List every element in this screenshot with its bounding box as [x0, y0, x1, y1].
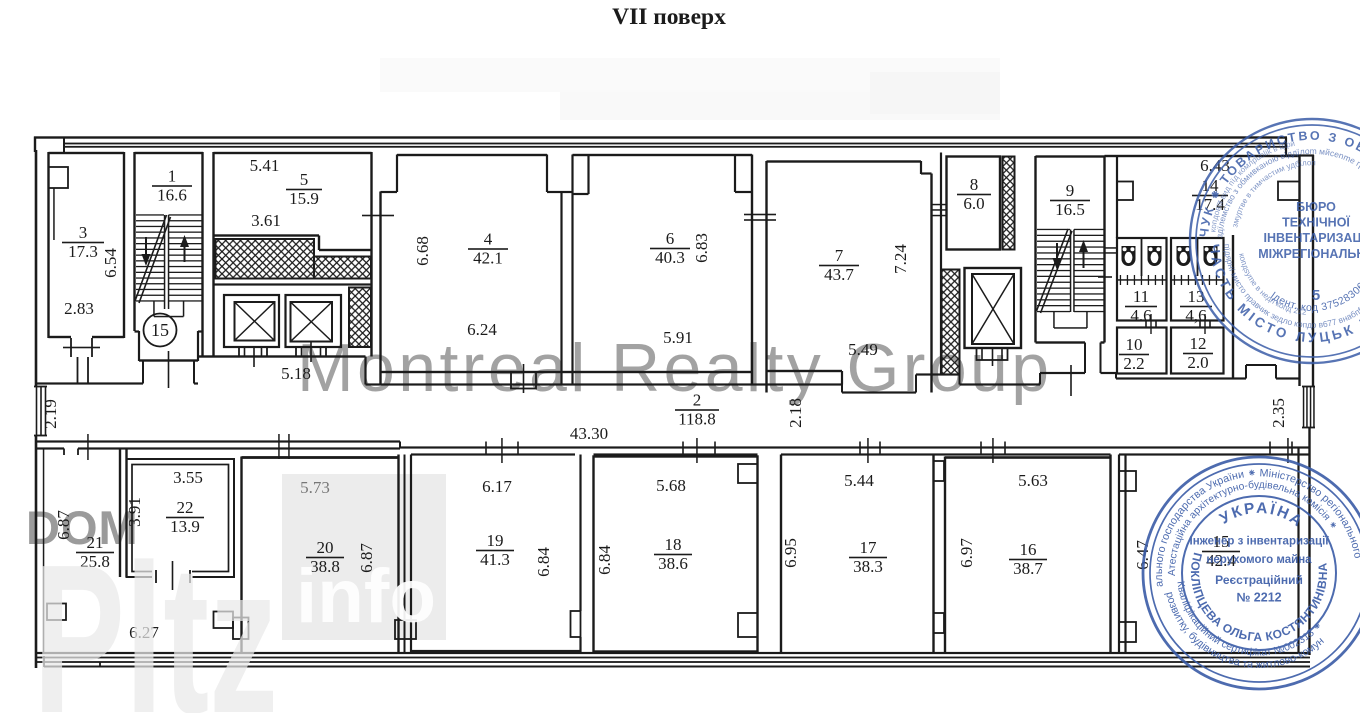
svg-text:4: 4 [484, 230, 493, 249]
svg-text:12: 12 [1190, 334, 1207, 353]
svg-text:№ 2212: № 2212 [1236, 591, 1281, 605]
svg-text:3.61: 3.61 [251, 211, 281, 230]
svg-text:VII поверх: VII поверх [612, 4, 726, 30]
svg-text:2.2: 2.2 [1123, 354, 1144, 373]
svg-text:8: 8 [970, 175, 979, 194]
svg-text:17: 17 [860, 538, 878, 557]
svg-text:5.18: 5.18 [281, 364, 311, 383]
svg-text:3: 3 [79, 223, 88, 242]
svg-text:9: 9 [1066, 181, 1075, 200]
svg-text:38.7: 38.7 [1013, 559, 1043, 578]
svg-text:43.7: 43.7 [824, 265, 854, 284]
svg-text:6.17: 6.17 [482, 477, 512, 496]
svg-text:18: 18 [665, 535, 682, 554]
svg-text:6.84: 6.84 [595, 545, 614, 575]
svg-text:2.0: 2.0 [1187, 353, 1208, 372]
svg-text:7: 7 [835, 246, 844, 265]
svg-text:ІНВЕНТАРИЗАЦІЇ: ІНВЕНТАРИЗАЦІЇ [1264, 230, 1360, 245]
svg-text:Реєстраційний: Реєстраційний [1215, 573, 1303, 587]
svg-text:5: 5 [1312, 287, 1320, 304]
svg-text:Інженер з інвентаризації: Інженер з інвентаризації [1190, 536, 1330, 548]
svg-text:2.19: 2.19 [41, 399, 60, 429]
svg-text:17.3: 17.3 [68, 242, 98, 261]
svg-text:16.6: 16.6 [157, 186, 187, 205]
svg-text:Pltz: Pltz [33, 520, 278, 713]
svg-text:2.83: 2.83 [64, 299, 94, 318]
svg-text:4.6: 4.6 [1130, 306, 1151, 325]
svg-text:15.9: 15.9 [289, 189, 319, 208]
svg-text:38.3: 38.3 [853, 557, 883, 576]
svg-text:42.1: 42.1 [473, 249, 503, 268]
svg-text:6.97: 6.97 [957, 538, 976, 568]
svg-text:6: 6 [666, 229, 675, 248]
svg-text:5.49: 5.49 [848, 340, 878, 359]
svg-text:1: 1 [168, 167, 177, 186]
svg-text:БЮРО: БЮРО [1296, 200, 1336, 214]
svg-text:info: info [296, 554, 436, 639]
svg-text:2: 2 [693, 391, 702, 410]
svg-text:43.30: 43.30 [570, 424, 608, 443]
svg-text:5.73: 5.73 [300, 478, 330, 497]
svg-text:5.63: 5.63 [1018, 471, 1048, 490]
svg-text:11: 11 [1133, 287, 1149, 306]
svg-text:5.91: 5.91 [663, 328, 693, 347]
svg-text:40.3: 40.3 [655, 248, 685, 267]
svg-text:6.83: 6.83 [692, 233, 711, 263]
svg-text:19: 19 [487, 531, 504, 550]
svg-text:5: 5 [300, 170, 309, 189]
svg-text:38.6: 38.6 [658, 554, 688, 573]
svg-text:13: 13 [1188, 287, 1205, 306]
svg-text:2.35: 2.35 [1269, 398, 1288, 428]
svg-text:ТЕХНІЧНОЇ: ТЕХНІЧНОЇ [1282, 215, 1350, 230]
svg-text:15: 15 [151, 320, 169, 340]
svg-text:5.44: 5.44 [844, 471, 874, 490]
svg-text:6.54: 6.54 [101, 248, 120, 278]
svg-text:16.5: 16.5 [1055, 200, 1085, 219]
svg-text:6.24: 6.24 [467, 320, 497, 339]
svg-text:2.18: 2.18 [786, 398, 805, 428]
svg-text:3.55: 3.55 [173, 468, 203, 487]
svg-text:7.24: 7.24 [891, 244, 910, 274]
svg-text:6.84: 6.84 [534, 547, 553, 577]
svg-text:22: 22 [177, 498, 194, 517]
svg-text:4,6: 4,6 [1185, 306, 1206, 325]
svg-text:нерухомого майна: нерухомого майна [1206, 554, 1312, 566]
svg-text:6.68: 6.68 [413, 236, 432, 266]
svg-text:118.8: 118.8 [678, 410, 716, 429]
svg-text:6.0: 6.0 [963, 194, 984, 213]
svg-text:16: 16 [1020, 540, 1037, 559]
svg-text:5.68: 5.68 [656, 476, 686, 495]
svg-text:6.95: 6.95 [781, 538, 800, 568]
svg-text:10: 10 [1126, 335, 1143, 354]
svg-text:41.3: 41.3 [480, 550, 510, 569]
svg-text:МІЖРЕГІОНАЛЬНЕ: МІЖРЕГІОНАЛЬНЕ [1258, 247, 1360, 261]
svg-text:5.41: 5.41 [250, 156, 280, 175]
